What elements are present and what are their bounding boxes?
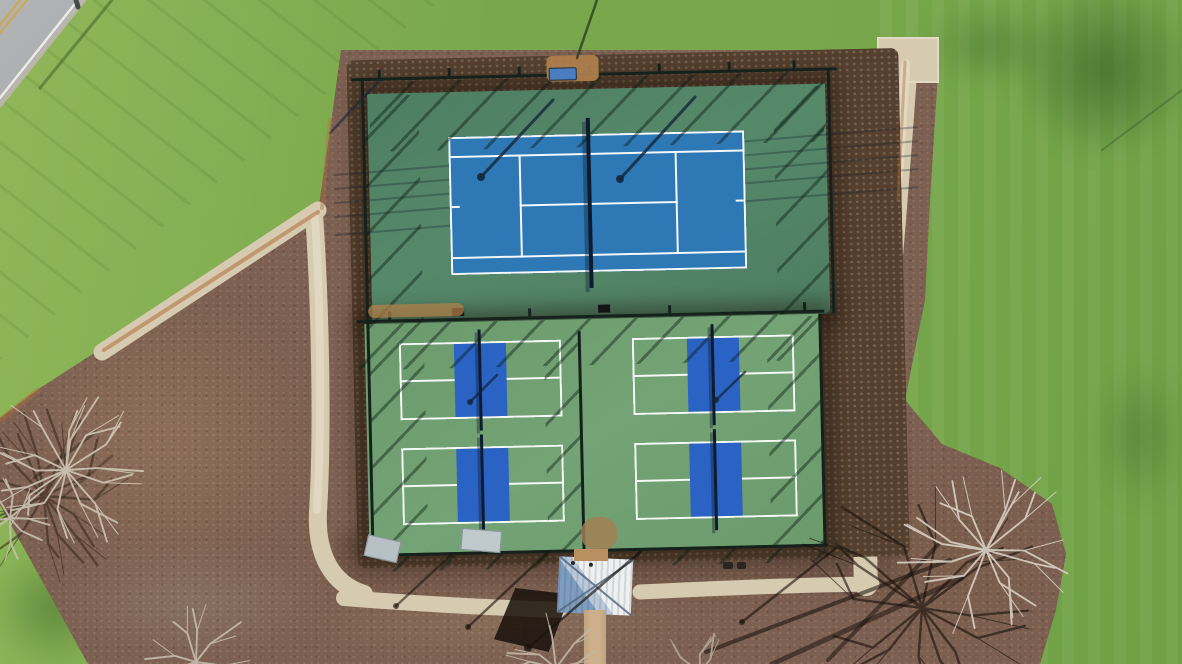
- trees-layer: [0, 0, 1182, 664]
- shadow-line: [742, 548, 836, 622]
- shadow-line: [577, 0, 597, 58]
- tree-shadow: [803, 486, 1032, 664]
- shadow-blob: [477, 173, 485, 181]
- shadow-line: [104, 212, 318, 350]
- shadow-line: [396, 554, 452, 606]
- shadow-line: [330, 80, 380, 133]
- shadow-line: [322, 120, 330, 208]
- shadow-line: [716, 372, 745, 400]
- shadow-line: [468, 552, 548, 627]
- shadow-line: [0, 390, 38, 420]
- aerial-photo: [0, 0, 1182, 664]
- bare-tree: [0, 478, 50, 561]
- shadow-blob: [393, 603, 399, 609]
- shadow-blob: [739, 619, 745, 625]
- shadow-blob: [467, 399, 473, 405]
- shadow-line: [76, 0, 78, 7]
- shadow-line: [528, 552, 640, 648]
- shadow-line: [0, 0, 27, 33]
- shadow-line: [620, 97, 695, 179]
- shadow-line: [470, 375, 497, 402]
- shadow-blob: [616, 175, 624, 183]
- shadow-line: [481, 100, 553, 177]
- shadow-blob: [465, 624, 471, 630]
- bare-tree: [506, 613, 602, 664]
- shadow-line: [898, 62, 905, 200]
- shadow-blob: [713, 397, 719, 403]
- bare-tree: [671, 634, 740, 664]
- shadow-line: [1102, 90, 1182, 150]
- shadow-line: [0, 0, 78, 98]
- bare-tree: [145, 605, 249, 664]
- shadow-line: [0, 0, 84, 105]
- shadow-blob: [524, 644, 532, 652]
